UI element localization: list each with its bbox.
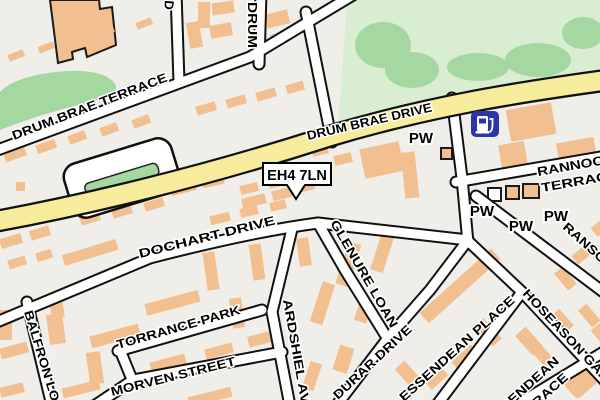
pw-label-1: PW bbox=[409, 130, 434, 147]
outlined-building bbox=[506, 186, 519, 199]
pw-label-2: PW bbox=[470, 203, 495, 220]
pw-label-4: PW bbox=[544, 208, 569, 225]
fuel-pump-icon bbox=[471, 111, 499, 137]
outlined-building-small bbox=[441, 148, 452, 159]
street-label-drum-partial: DRUM bbox=[245, 2, 260, 48]
street-label-d-partial: D bbox=[161, 0, 177, 10]
pw-label-3: PW bbox=[509, 218, 534, 235]
postcode-label: EH4 7LN bbox=[267, 168, 327, 184]
map-canvas[interactable]: DRUM BRAE TERRACE DRUM BRAE DRIVE DRUM D… bbox=[0, 0, 600, 400]
outlined-building bbox=[523, 184, 539, 198]
